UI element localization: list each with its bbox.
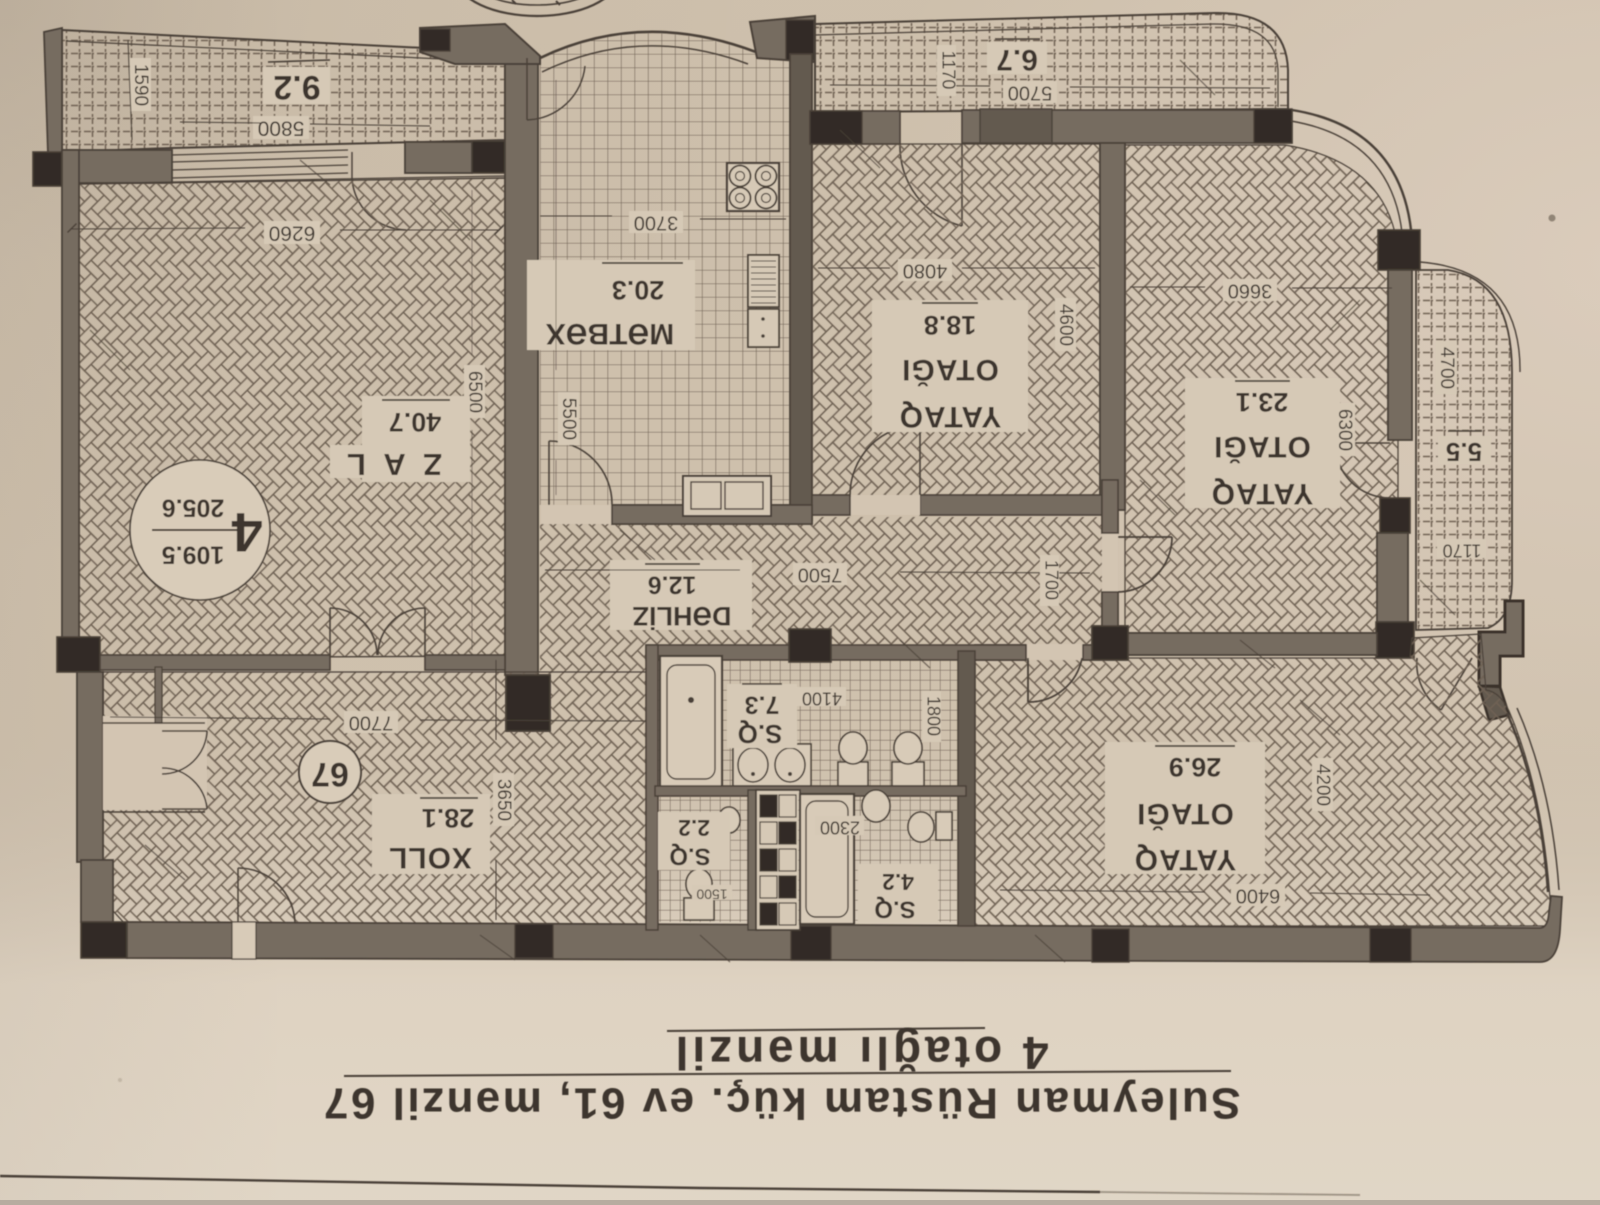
svg-text:S.Q: S.Q [738, 719, 783, 749]
svg-text:67: 67 [311, 755, 349, 793]
svg-text:28.1: 28.1 [422, 803, 475, 833]
svg-text:4600: 4600 [1055, 304, 1076, 346]
svg-text:3700: 3700 [634, 212, 679, 234]
svg-text:4100: 4100 [802, 688, 842, 708]
svg-text:1700: 1700 [1041, 560, 1061, 600]
svg-text:40.7: 40.7 [389, 407, 442, 437]
svg-text:3650: 3650 [493, 779, 514, 821]
svg-text:S.Q: S.Q [669, 843, 710, 870]
svg-text:S.Q: S.Q [874, 896, 915, 923]
svg-text:20.3: 20.3 [612, 275, 665, 305]
svg-text:4: 4 [231, 501, 262, 564]
svg-text:6300: 6300 [1334, 409, 1355, 451]
svg-text:YATAQ: YATAQ [899, 400, 1002, 433]
svg-text:OTAĞI: OTAĞI [901, 353, 999, 387]
svg-text:7500: 7500 [798, 564, 843, 586]
svg-text:7700: 7700 [349, 712, 394, 734]
svg-text:2300: 2300 [820, 817, 860, 837]
svg-text:23.1: 23.1 [1236, 387, 1289, 417]
svg-text:18.8: 18.8 [924, 310, 977, 340]
svg-text:6400: 6400 [1236, 885, 1281, 907]
svg-text:4 otağlı mənzil: 4 otağlı mənzil [672, 1027, 1049, 1079]
svg-text:5800: 5800 [258, 116, 305, 139]
svg-text:4080: 4080 [903, 260, 948, 282]
svg-text:5700: 5700 [1008, 82, 1053, 104]
svg-text:Z A L: Z A L [342, 447, 442, 482]
svg-text:7.3: 7.3 [745, 690, 780, 718]
svg-text:26.9: 26.9 [1169, 752, 1222, 782]
svg-text:205.6: 205.6 [162, 493, 225, 521]
svg-text:OTAĞI: OTAĞI [1213, 430, 1311, 464]
svg-text:1500: 1500 [696, 886, 727, 902]
svg-text:109.5: 109.5 [162, 540, 225, 568]
svg-text:1800: 1800 [923, 696, 943, 736]
svg-text:5.5: 5.5 [1446, 437, 1482, 467]
svg-text:YATAQ: YATAQ [1211, 477, 1314, 510]
svg-text:1590: 1590 [130, 64, 151, 106]
svg-text:OTAĞI: OTAĞI [1136, 797, 1234, 831]
svg-text:4200: 4200 [1312, 764, 1333, 806]
svg-text:6260: 6260 [269, 221, 316, 244]
svg-text:YATAQ: YATAQ [1134, 843, 1237, 876]
svg-text:Suleyman Rüstam küç. ev 61, m: Suleyman Rüstam küç. ev 61, mənzil 67 [321, 1078, 1240, 1127]
svg-text:4700: 4700 [1436, 347, 1457, 389]
svg-text:12.6: 12.6 [648, 570, 697, 598]
svg-text:6.7: 6.7 [996, 43, 1038, 76]
svg-text:9.2: 9.2 [273, 68, 320, 106]
svg-text:2.2: 2.2 [678, 815, 710, 841]
svg-text:5500: 5500 [558, 398, 579, 440]
svg-text:1170: 1170 [938, 51, 958, 90]
svg-text:XOLL: XOLL [388, 841, 472, 874]
svg-text:1170: 1170 [1443, 540, 1482, 560]
svg-text:MƏTBƏX: MƏTBƏX [546, 317, 675, 350]
svg-text:DƏHLİZ: DƏHLİZ [632, 601, 731, 631]
svg-text:4.2: 4.2 [882, 869, 914, 895]
svg-text:3660: 3660 [1228, 280, 1273, 302]
